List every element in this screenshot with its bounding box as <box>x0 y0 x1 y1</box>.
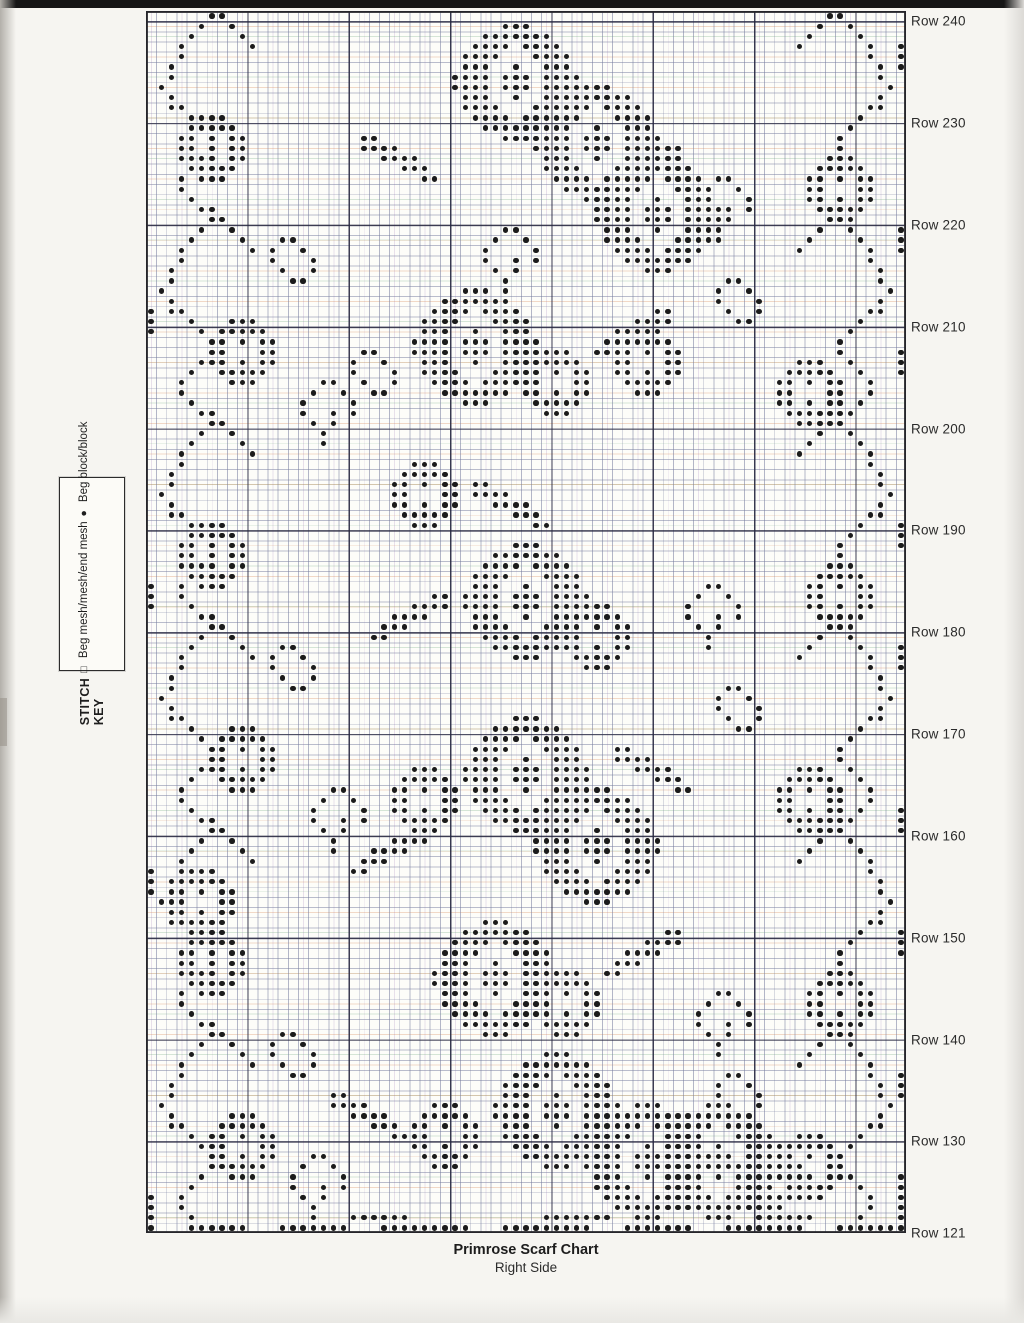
block-dot <box>675 350 680 355</box>
block-dot <box>635 390 640 395</box>
block-dot <box>189 1134 194 1139</box>
block-dot <box>483 747 488 752</box>
block-dot <box>189 146 194 151</box>
block-dot <box>696 187 701 192</box>
block-dot <box>392 808 397 813</box>
block-dot <box>199 889 204 894</box>
block-dot <box>848 1032 853 1037</box>
block-dot <box>199 24 204 29</box>
block-dot <box>533 339 538 344</box>
block-dot <box>240 380 245 385</box>
block-dot <box>655 1195 660 1200</box>
block-dot <box>888 85 893 90</box>
block-dot <box>493 624 498 629</box>
block-dot <box>229 543 234 548</box>
block-dot <box>199 207 204 212</box>
block-dot <box>807 360 812 365</box>
block-dot <box>584 1022 589 1027</box>
block-dot <box>442 1144 447 1149</box>
block-dot <box>625 136 630 141</box>
block-dot <box>746 1164 751 1169</box>
block-dot <box>260 736 265 741</box>
block-dot <box>533 635 538 640</box>
block-dot <box>199 767 204 772</box>
block-dot <box>584 981 589 986</box>
block-dot <box>260 747 265 752</box>
block-dot <box>807 421 812 426</box>
block-dot <box>442 1154 447 1159</box>
block-dot <box>756 1093 761 1098</box>
block-dot <box>635 848 640 853</box>
block-dot <box>685 237 690 242</box>
block-dot <box>513 85 518 90</box>
block-dot <box>655 319 660 324</box>
block-dot <box>817 767 822 772</box>
block-dot <box>240 237 245 242</box>
block-dot <box>767 1215 772 1220</box>
block-dot <box>442 604 447 609</box>
block-dot <box>463 777 468 782</box>
block-dot <box>544 1144 549 1149</box>
block-dot <box>594 1185 599 1190</box>
block-dot <box>422 523 427 528</box>
row-labels: Row 240Row 230Row 220Row 210Row 200Row 1… <box>911 11 1021 1233</box>
block-dot <box>716 237 721 242</box>
block-dot <box>604 85 609 90</box>
block-dot <box>483 1032 488 1037</box>
block-dot <box>554 411 559 416</box>
block-dot <box>209 1164 214 1169</box>
block-dot <box>837 1032 842 1037</box>
block-dot <box>473 604 478 609</box>
block-dot <box>240 1123 245 1128</box>
block-dot <box>878 686 883 691</box>
block-dot <box>625 1123 630 1128</box>
block-dot <box>898 930 903 935</box>
block-dot <box>473 584 478 589</box>
block-dot <box>371 390 376 395</box>
block-dot <box>554 350 559 355</box>
block-dot <box>483 380 488 385</box>
block-dot <box>564 1073 569 1078</box>
block-dot <box>533 146 538 151</box>
block-dot <box>493 309 498 314</box>
block-dot <box>371 136 376 141</box>
block-dot <box>645 1164 650 1169</box>
block-dot <box>331 1093 336 1098</box>
block-dot <box>493 1032 498 1037</box>
block-dot <box>635 1154 640 1159</box>
block-dot <box>868 1225 873 1230</box>
block-dot <box>574 85 579 90</box>
block-dot <box>229 431 234 436</box>
block-dot <box>858 848 863 853</box>
block-dot <box>209 879 214 884</box>
block-dot <box>655 146 660 151</box>
block-dot <box>868 390 873 395</box>
block-dot <box>219 1154 224 1159</box>
block-dot <box>442 360 447 365</box>
block-dot <box>219 217 224 222</box>
block-dot <box>503 288 508 293</box>
block-dot <box>533 940 538 945</box>
block-dot <box>837 543 842 548</box>
block-dot <box>199 115 204 120</box>
block-dot <box>696 197 701 202</box>
block-dot <box>837 574 842 579</box>
block-dot <box>584 1083 589 1088</box>
block-dot <box>878 472 883 477</box>
block-dot <box>432 370 437 375</box>
block-dot <box>392 146 397 151</box>
block-dot <box>594 217 599 222</box>
block-dot <box>655 1205 660 1210</box>
block-dot <box>179 105 184 110</box>
block-dot <box>189 34 194 39</box>
block-dot <box>827 166 832 171</box>
block-dot <box>645 1154 650 1159</box>
block-dot <box>513 828 518 833</box>
block-dot <box>523 777 528 782</box>
block-dot <box>240 319 245 324</box>
block-dot <box>868 512 873 517</box>
block-dot <box>544 1052 549 1057</box>
block-dot <box>584 889 589 894</box>
block-dot <box>777 1154 782 1159</box>
block-dot <box>817 176 822 181</box>
block-dot <box>371 635 376 640</box>
block-dot <box>533 1001 538 1006</box>
block-dot <box>574 818 579 823</box>
block-dot <box>493 44 498 49</box>
block-dot <box>554 1164 559 1169</box>
block-dot <box>513 808 518 813</box>
block-dot <box>229 166 234 171</box>
block-dot <box>331 1225 336 1230</box>
block-dot <box>189 400 194 405</box>
block-dot <box>219 339 224 344</box>
block-dot <box>564 614 569 619</box>
block-dot <box>503 390 508 395</box>
block-dot <box>463 75 468 80</box>
block-dot <box>564 563 569 568</box>
block-dot <box>554 563 559 568</box>
block-dot <box>533 1073 538 1078</box>
block-dot <box>351 1113 356 1118</box>
block-dot <box>554 370 559 375</box>
block-dot <box>148 869 153 874</box>
block-dot <box>898 818 903 823</box>
block-dot <box>422 1113 427 1118</box>
block-dot <box>554 838 559 843</box>
block-dot <box>655 1113 660 1118</box>
block-dot <box>645 859 650 864</box>
block-dot <box>696 1134 701 1139</box>
block-dot <box>797 421 802 426</box>
block-dot <box>827 828 832 833</box>
block-dot <box>219 1225 224 1230</box>
block-dot <box>655 940 660 945</box>
block-dot <box>442 339 447 344</box>
block-dot <box>777 1215 782 1220</box>
block-dot <box>726 1103 731 1108</box>
block-dot <box>817 1042 822 1047</box>
block-dot <box>635 961 640 966</box>
block-dot <box>523 950 528 955</box>
block-dot <box>148 319 153 324</box>
block-dot <box>331 838 336 843</box>
row-label: Row 121 <box>911 1226 966 1241</box>
block-dot <box>463 309 468 314</box>
block-dot <box>533 655 538 660</box>
block-dot <box>229 319 234 324</box>
block-dot <box>219 1123 224 1128</box>
block-dot <box>311 665 316 670</box>
block-dot <box>736 1134 741 1139</box>
block-dot <box>523 1022 528 1027</box>
block-dot <box>645 125 650 130</box>
block-dot <box>645 390 650 395</box>
block-dot <box>685 1225 690 1230</box>
block-dot <box>381 624 386 629</box>
block-dot <box>473 787 478 792</box>
block-dot <box>189 523 194 528</box>
block-dot <box>675 1225 680 1230</box>
block-dot <box>726 1205 731 1210</box>
block-dot <box>584 1215 589 1220</box>
block-dot <box>513 1022 518 1027</box>
block-dot <box>615 645 620 650</box>
block-dot <box>240 848 245 853</box>
block-dot <box>503 818 508 823</box>
block-dot <box>473 1011 478 1016</box>
block-dot <box>209 757 214 762</box>
block-dot <box>848 563 853 568</box>
block-dot <box>625 370 630 375</box>
block-dot <box>848 431 853 436</box>
block-dot <box>219 899 224 904</box>
block-dot <box>533 1134 538 1139</box>
block-dot <box>169 95 174 100</box>
block-dot <box>189 971 194 976</box>
block-dot <box>685 604 690 609</box>
block-dot <box>746 1174 751 1179</box>
block-dot <box>696 248 701 253</box>
block-dot <box>645 1174 650 1179</box>
block-dot <box>594 136 599 141</box>
block-dot <box>189 319 194 324</box>
block-dot <box>452 1103 457 1108</box>
block-dot <box>554 614 559 619</box>
block-dot <box>625 757 630 762</box>
block-dot <box>564 166 569 171</box>
block-dot <box>179 563 184 568</box>
block-dot <box>442 787 447 792</box>
block-dot <box>635 248 640 253</box>
block-dot <box>716 1093 721 1098</box>
block-dot <box>635 1225 640 1230</box>
block-dot <box>169 309 174 314</box>
block-dot <box>554 574 559 579</box>
block-dot <box>270 248 275 253</box>
block-dot <box>655 950 660 955</box>
block-dot <box>331 421 336 426</box>
block-dot <box>219 1032 224 1037</box>
block-dot <box>594 991 599 996</box>
block-dot <box>452 299 457 304</box>
block-dot <box>858 197 863 202</box>
block-dot <box>412 472 417 477</box>
block-dot <box>493 614 498 619</box>
block-dot <box>554 971 559 976</box>
block-dot <box>574 1154 579 1159</box>
block-dot <box>746 1022 751 1027</box>
block-dot <box>584 604 589 609</box>
block-dot <box>422 319 427 324</box>
block-dot <box>533 726 538 731</box>
block-dot <box>432 981 437 986</box>
block-dot <box>250 1062 255 1067</box>
block-dot <box>594 1123 599 1128</box>
block-dot <box>473 44 478 49</box>
block-dot <box>746 288 751 293</box>
block-dot <box>452 1001 457 1006</box>
block-dot <box>219 777 224 782</box>
block-dot <box>331 1164 336 1169</box>
block-dot <box>463 971 468 976</box>
block-dot <box>635 767 640 772</box>
block-dot <box>169 675 174 680</box>
block-dot <box>544 624 549 629</box>
block-dot <box>300 411 305 416</box>
block-dot <box>564 136 569 141</box>
block-dot <box>706 1032 711 1037</box>
block-dot <box>483 248 488 253</box>
block-dot <box>716 1113 721 1118</box>
block-dot <box>635 237 640 242</box>
block-dot <box>300 400 305 405</box>
block-dot <box>645 818 650 823</box>
block-dot <box>665 940 670 945</box>
block-dot <box>533 125 538 130</box>
block-dot <box>564 411 569 416</box>
block-dot <box>483 95 488 100</box>
block-dot <box>523 645 528 650</box>
block-dot <box>533 350 538 355</box>
block-dot <box>858 777 863 782</box>
block-dot <box>452 370 457 375</box>
block-dot <box>442 472 447 477</box>
block-dot <box>604 95 609 100</box>
block-dot <box>544 400 549 405</box>
block-dot <box>554 808 559 813</box>
block-dot <box>381 1123 386 1128</box>
block-dot <box>716 207 721 212</box>
block-dot <box>635 176 640 181</box>
block-dot <box>523 1144 528 1149</box>
block-dot <box>179 716 184 721</box>
block-dot <box>645 370 650 375</box>
block-dot <box>199 1022 204 1027</box>
block-dot <box>594 1083 599 1088</box>
block-dot <box>219 624 224 629</box>
block-dot <box>169 299 174 304</box>
block-dot <box>777 808 782 813</box>
block-dot <box>483 736 488 741</box>
block-dot <box>767 1144 772 1149</box>
block-dot <box>645 217 650 222</box>
block-dot <box>858 1052 863 1057</box>
block-dot <box>777 1174 782 1179</box>
block-dot <box>311 421 316 426</box>
block-dot <box>412 828 417 833</box>
block-dot <box>544 360 549 365</box>
block-dot <box>868 187 873 192</box>
block-dot <box>270 1134 275 1139</box>
block-dot <box>807 808 812 813</box>
block-dot <box>513 635 518 640</box>
block-dot <box>493 777 498 782</box>
block-dot <box>452 950 457 955</box>
block-dot <box>523 44 528 49</box>
block-dot <box>533 258 538 263</box>
page-bottom-edge-shadow <box>0 1297 1024 1323</box>
block-dot <box>848 818 853 823</box>
block-dot <box>513 136 518 141</box>
block-dot <box>523 339 528 344</box>
block-dot <box>412 818 417 823</box>
block-dot <box>716 1174 721 1179</box>
block-dot <box>523 370 528 375</box>
block-dot <box>412 350 417 355</box>
stitch-key-item-label: Beg mesh/mesh/end mesh <box>78 522 90 662</box>
block-dot <box>219 1144 224 1149</box>
block-dot <box>858 370 863 375</box>
block-dot <box>645 115 650 120</box>
block-dot <box>493 808 498 813</box>
block-dot <box>848 329 853 334</box>
block-dot <box>827 787 832 792</box>
block-dot <box>503 24 508 29</box>
block-dot <box>513 268 518 273</box>
block-dot <box>645 319 650 324</box>
block-dot <box>189 940 194 945</box>
block-dot <box>148 309 153 314</box>
block-dot <box>442 1001 447 1006</box>
block-dot <box>604 105 609 110</box>
block-dot <box>625 624 630 629</box>
block-dot <box>817 360 822 365</box>
block-dot <box>574 747 579 752</box>
block-dot <box>685 1164 690 1169</box>
block-dot <box>381 848 386 853</box>
block-dot <box>189 961 194 966</box>
block-dot <box>503 44 508 49</box>
block-dot <box>533 808 538 813</box>
block-dot <box>402 1225 407 1230</box>
block-dot <box>888 1103 893 1108</box>
block-dot <box>878 1093 883 1098</box>
block-dot <box>848 981 853 986</box>
block-dot <box>544 635 549 640</box>
block-dot <box>483 798 488 803</box>
block-dot <box>523 125 528 130</box>
block-dot <box>432 818 437 823</box>
block-dot <box>351 400 356 405</box>
block-dot <box>594 1134 599 1139</box>
block-dot <box>503 380 508 385</box>
block-dot <box>767 1174 772 1179</box>
